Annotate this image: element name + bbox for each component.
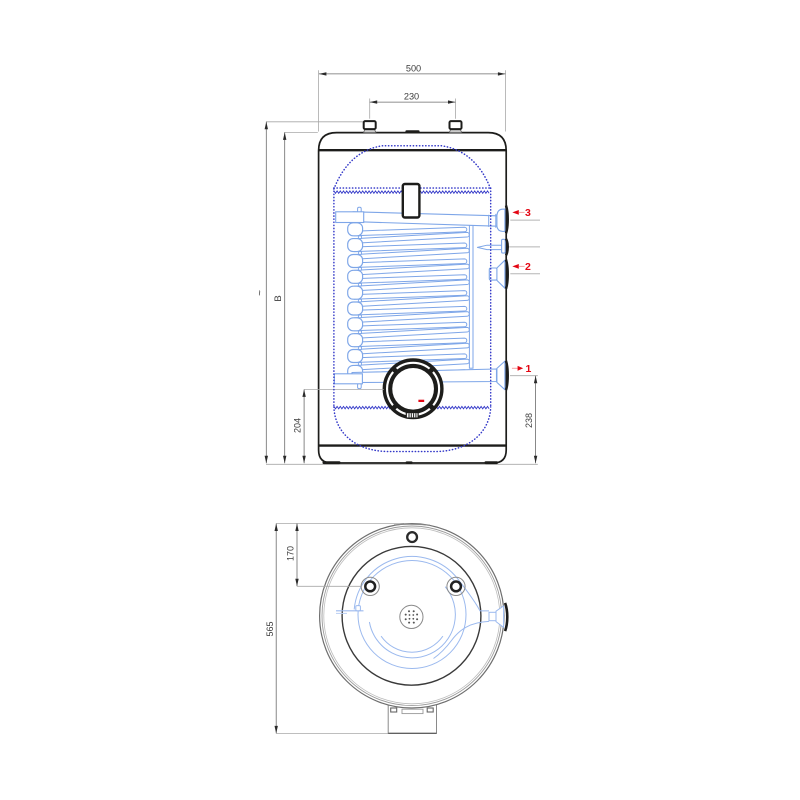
svg-text:2: 2 bbox=[525, 261, 531, 273]
svg-text:~: ~ bbox=[255, 290, 266, 296]
svg-text:B: B bbox=[273, 295, 284, 301]
svg-text:1: 1 bbox=[525, 363, 531, 375]
svg-text:230: 230 bbox=[404, 92, 419, 102]
svg-text:565: 565 bbox=[265, 621, 275, 636]
svg-text:238: 238 bbox=[524, 413, 534, 428]
svg-text:204: 204 bbox=[293, 418, 303, 433]
svg-text:3: 3 bbox=[525, 207, 531, 219]
svg-text:170: 170 bbox=[286, 546, 296, 561]
svg-text:500: 500 bbox=[406, 64, 421, 74]
